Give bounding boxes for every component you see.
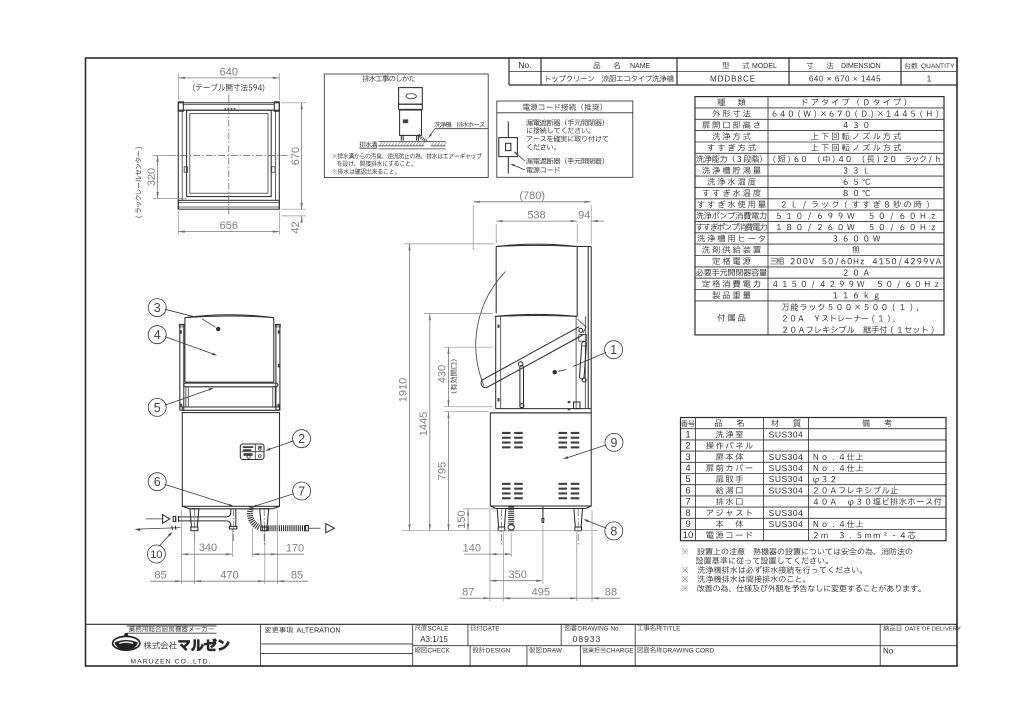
svg-text:DRAW: DRAW — [543, 647, 563, 654]
svg-text:TITLE: TITLE — [663, 625, 680, 632]
svg-text:7: 7 — [298, 484, 305, 498]
svg-text:SUS304: SUS304 — [769, 452, 804, 462]
svg-text:CHECK: CHECK — [428, 647, 451, 654]
svg-text:9: 9 — [685, 519, 690, 530]
svg-text:2: 2 — [298, 432, 305, 446]
svg-text:No.: No. — [518, 60, 531, 70]
svg-text:08933: 08933 — [573, 634, 602, 644]
svg-text:DATE: DATE — [483, 625, 500, 632]
svg-text:8: 8 — [610, 524, 617, 538]
svg-text:470: 470 — [220, 569, 238, 581]
svg-text:CHARGE: CHARGE — [606, 647, 633, 654]
svg-text:795: 795 — [436, 462, 448, 480]
svg-text:340: 340 — [199, 542, 217, 554]
svg-text:DRAWING CORD: DRAWING CORD — [663, 647, 715, 654]
svg-text:170: 170 — [286, 542, 304, 554]
svg-text:SUS304: SUS304 — [769, 474, 804, 484]
svg-text:A3:1/15: A3:1/15 — [420, 635, 448, 644]
svg-text:85: 85 — [154, 569, 166, 581]
svg-text:640: 640 — [220, 67, 238, 79]
svg-text:1: 1 — [610, 343, 617, 357]
svg-text:94: 94 — [578, 209, 590, 221]
svg-text:5: 5 — [685, 474, 690, 485]
svg-text:8: 8 — [685, 508, 690, 519]
svg-text:DESIGN: DESIGN — [486, 647, 511, 654]
svg-text:SUS304: SUS304 — [769, 463, 804, 473]
svg-text:MDDB8CE: MDDB8CE — [710, 75, 756, 84]
svg-text:NAME: NAME — [630, 63, 651, 70]
svg-text:ALTERATION: ALTERATION — [297, 626, 341, 635]
svg-text:MODEL: MODEL — [752, 63, 777, 70]
svg-text:495: 495 — [532, 586, 550, 598]
svg-text:7: 7 — [685, 497, 690, 508]
svg-text:SUS304: SUS304 — [769, 485, 804, 495]
svg-text:85: 85 — [291, 569, 303, 581]
svg-text:320: 320 — [146, 168, 158, 186]
svg-text:SUS304: SUS304 — [769, 429, 804, 439]
svg-text:350: 350 — [509, 569, 527, 581]
svg-text:1910: 1910 — [398, 378, 410, 402]
svg-text:4: 4 — [685, 463, 690, 474]
svg-text:No.: No. — [883, 647, 895, 656]
svg-text:SUS304: SUS304 — [769, 508, 804, 518]
svg-text:670: 670 — [290, 147, 302, 165]
svg-text:10: 10 — [150, 549, 162, 561]
svg-text:SCALE: SCALE — [428, 625, 449, 632]
svg-text:1: 1 — [685, 429, 690, 440]
svg-text:88: 88 — [605, 586, 617, 598]
svg-text:1445: 1445 — [418, 412, 430, 436]
svg-text:87: 87 — [462, 586, 474, 598]
svg-text:MARUZEN CO.,LTD.: MARUZEN CO.,LTD. — [130, 658, 211, 665]
svg-text:DRAWING No.: DRAWING No. — [578, 625, 621, 632]
svg-text:140: 140 — [463, 542, 481, 554]
svg-text:640 × 670 × 1445: 640 × 670 × 1445 — [809, 75, 881, 84]
svg-text:538: 538 — [527, 209, 545, 221]
svg-text:150: 150 — [456, 510, 468, 528]
svg-text:3: 3 — [685, 452, 690, 463]
svg-text:3: 3 — [154, 301, 161, 315]
svg-text:6: 6 — [685, 485, 690, 496]
svg-text:1: 1 — [927, 75, 932, 84]
svg-text:(780): (780) — [519, 190, 545, 202]
svg-text:10: 10 — [683, 530, 694, 541]
svg-text:656: 656 — [220, 220, 238, 232]
svg-text:5: 5 — [154, 401, 161, 415]
svg-text:SUS304: SUS304 — [769, 519, 804, 529]
svg-text:9: 9 — [611, 436, 618, 450]
svg-text:6: 6 — [154, 475, 161, 489]
svg-text:4: 4 — [154, 328, 161, 342]
svg-text:DIMENSION: DIMENSION — [841, 63, 881, 70]
svg-text:DATE OF DELIVERY: DATE OF DELIVERY — [905, 627, 961, 633]
svg-text:430: 430 — [436, 365, 448, 383]
svg-text:QUANTITY: QUANTITY — [921, 63, 955, 70]
svg-text:2: 2 — [685, 441, 690, 452]
svg-text:42: 42 — [290, 221, 302, 233]
